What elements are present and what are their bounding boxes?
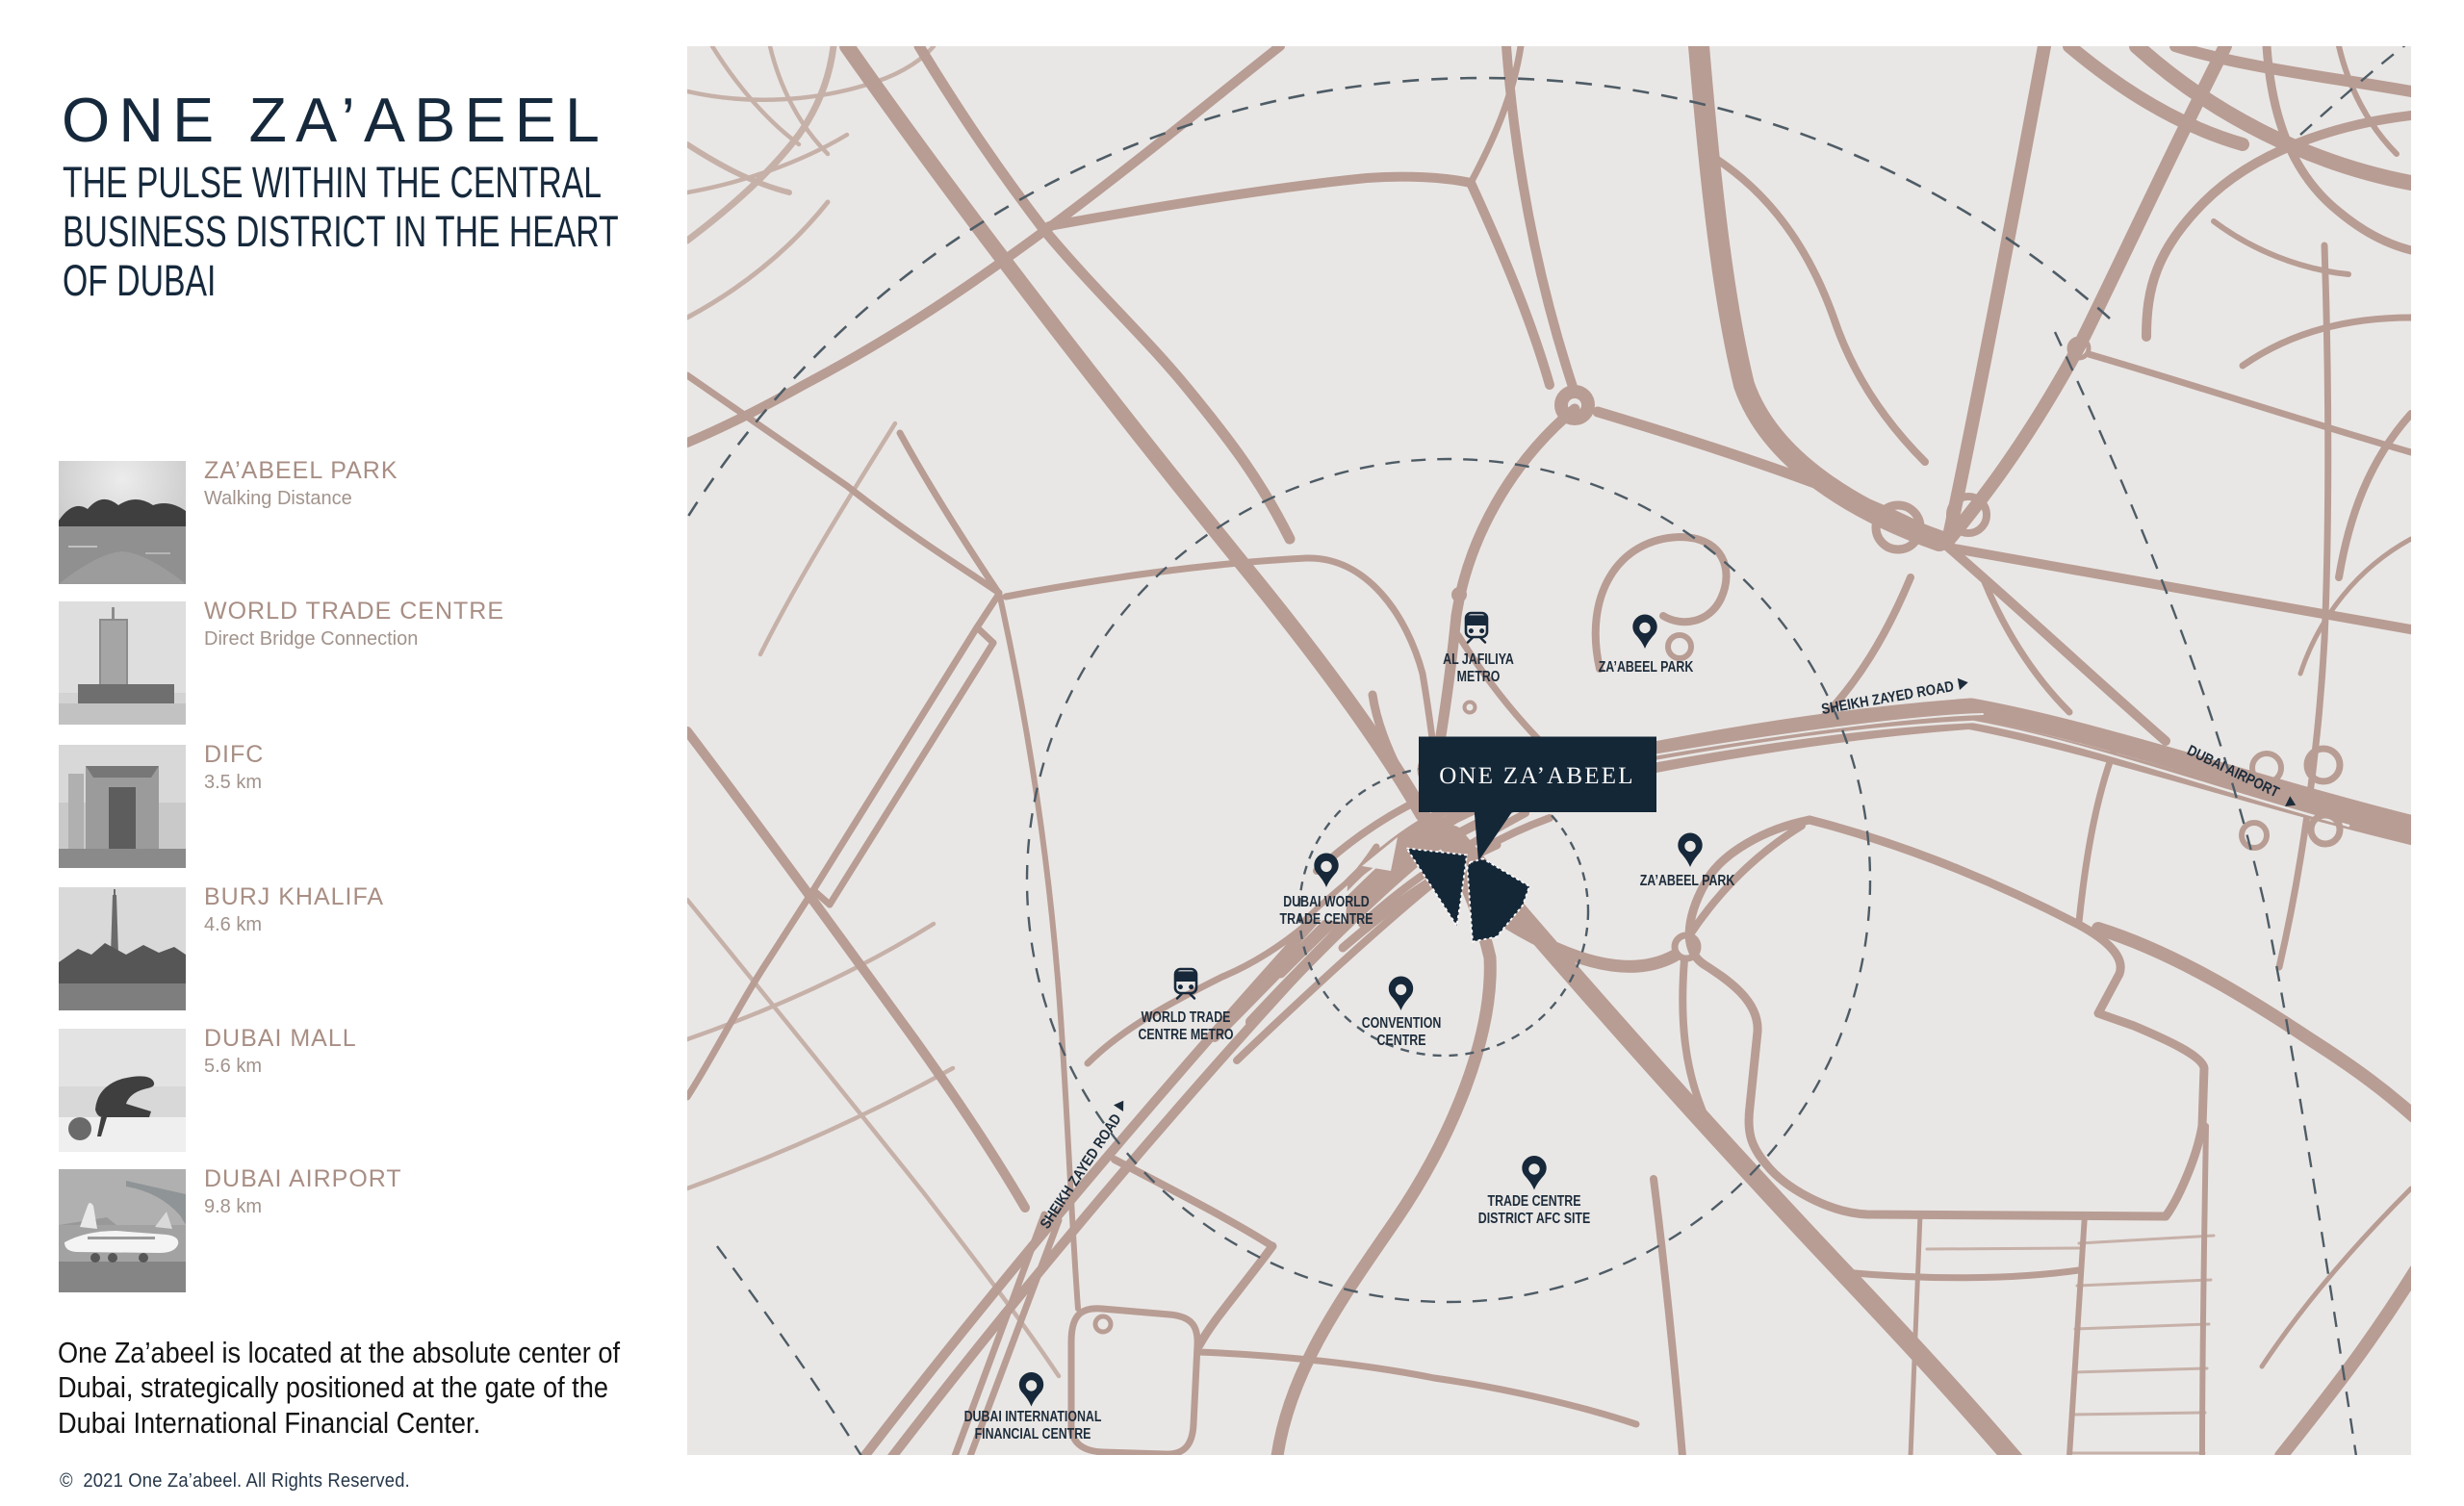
svg-text:ZA’ABEEL PARK: ZA’ABEEL PARK	[1640, 872, 1735, 889]
svg-text:DISTRICT AFC SITE: DISTRICT AFC SITE	[1478, 1210, 1590, 1227]
svg-text:DUBAI INTERNATIONAL: DUBAI INTERNATIONAL	[964, 1408, 1102, 1425]
svg-text:CONVENTION: CONVENTION	[1362, 1014, 1442, 1032]
svg-text:CENTRE METRO: CENTRE METRO	[1138, 1026, 1233, 1043]
svg-text:CENTRE: CENTRE	[1377, 1032, 1426, 1049]
svg-text:DUBAI WORLD: DUBAI WORLD	[1283, 893, 1369, 910]
svg-text:AL JAFILIYA: AL JAFILIYA	[1443, 651, 1514, 668]
svg-text:TRADE CENTRE: TRADE CENTRE	[1279, 910, 1373, 928]
svg-text:FINANCIAL CENTRE: FINANCIAL CENTRE	[975, 1425, 1091, 1442]
svg-text:METRO: METRO	[1457, 668, 1501, 685]
svg-text:TRADE CENTRE: TRADE CENTRE	[1487, 1192, 1580, 1210]
svg-text:ONE ZA’ABEEL: ONE ZA’ABEEL	[1439, 763, 1634, 789]
svg-text:ZA’ABEEL PARK: ZA’ABEEL PARK	[1599, 658, 1694, 676]
svg-text:WORLD TRADE: WORLD TRADE	[1142, 1008, 1231, 1026]
